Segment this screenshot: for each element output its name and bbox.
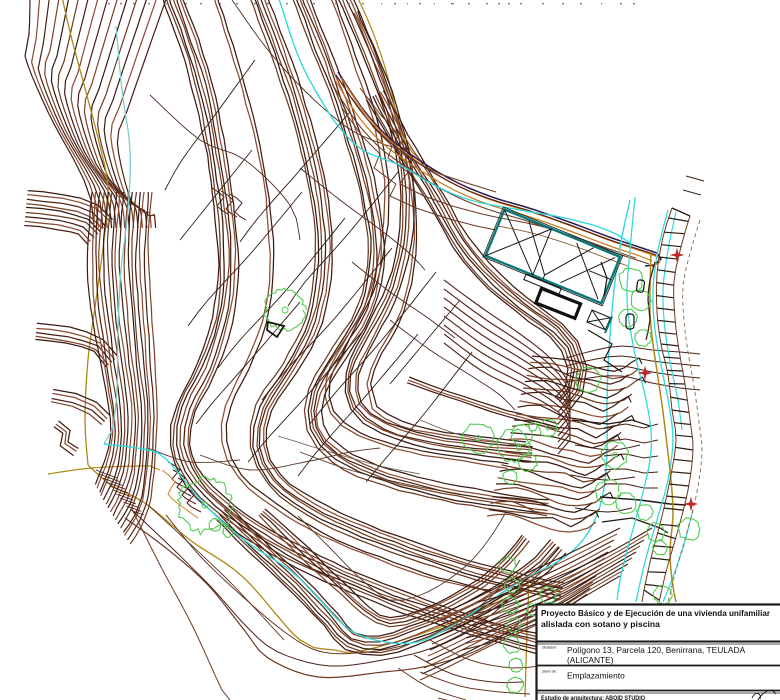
svg-text:alislada con sotano y piscina: alislada con sotano y piscina (541, 619, 660, 629)
svg-text:Proyecto Básico y de Ejecución: Proyecto Básico y de Ejecución de una vi… (541, 608, 771, 618)
svg-text:Estudio de arquitectura: ABOID: Estudio de arquitectura: ABOID STUDIO (541, 696, 645, 700)
svg-text:plano de:: plano de: (542, 670, 557, 674)
svg-text:(ALICANTE): (ALICANTE) (567, 655, 614, 665)
svg-text:Polígono 13, Parcela 120, Beni: Polígono 13, Parcela 120, Benirrana, TEU… (567, 645, 746, 655)
svg-text:situación:: situación: (542, 646, 557, 650)
svg-text:Emplazamiento: Emplazamiento (567, 671, 625, 681)
